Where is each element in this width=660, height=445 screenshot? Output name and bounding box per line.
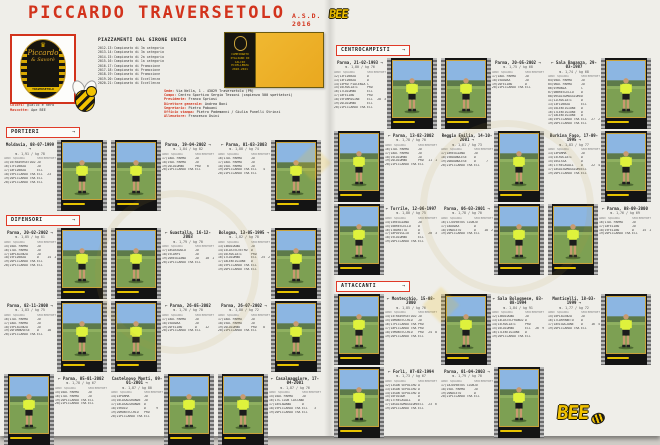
stats-cell	[595, 172, 600, 176]
player-block: Castelnovo Monti, 09-01-2001 →m. 1,87 / …	[111, 374, 216, 445]
player-stats: Bologna, 13-05-1995 →m. 1,82 / kg 78ANNO…	[218, 228, 270, 299]
player-stats: Parma, 01-04-2003 →m. 1,79 / kg 70ANNOSQ…	[441, 367, 493, 438]
stats-cell: 19/20	[385, 407, 394, 411]
player-card	[4, 374, 54, 445]
player-physique: m. 1,91 / kg 78	[4, 152, 56, 156]
stats-cell: PICCARDO TRA	[64, 402, 88, 406]
stats-cell: ECC	[37, 333, 45, 337]
section-header-attaccanti: ATTACCANTI→	[336, 281, 410, 292]
stats-cell: PICCARDO TRA	[557, 327, 581, 331]
player-name-text	[607, 194, 629, 197]
player-name-text	[340, 267, 362, 270]
stats-row: 19/20PICCARDO TRAECC	[269, 411, 321, 415]
player-stats: Castelnovo Monti, 09-01-2001 →m. 1,87 / …	[111, 374, 163, 445]
placement-label: Campionato di Eccellenza	[114, 81, 160, 85]
player-name-text	[340, 430, 362, 433]
player-card	[601, 58, 651, 129]
crest-stripe	[21, 48, 27, 90]
stats-cell	[488, 164, 493, 168]
stats-cell: ECC	[632, 232, 640, 236]
stats-cell: ECC	[144, 415, 152, 419]
placements-panel: PIAZZAMENTI DAL GIRONE UNICO 2012-13:Cam…	[98, 38, 218, 86]
stats-cell: PICCARDO TRA	[171, 329, 195, 333]
player-physique: m. 1,84 / kg 91	[492, 306, 544, 310]
section-attaccanti: ATTACCANTI→← Montecchio, 15-08-2000m. 1,…	[334, 272, 656, 438]
stats-cell: ECC	[418, 240, 426, 244]
player-nameplate	[606, 354, 646, 363]
player-stats: ← Parma, 08-09-2000m. 1,76 / kg 69ANNOSQ…	[599, 204, 651, 275]
stats-cell	[265, 172, 270, 176]
player-block: Monticelli, 18-03-1999 →m. 1,77 / kg 72A…	[548, 294, 653, 365]
championship-card-label: CAMPIONATOITALIANO DICALCIOECCELLENZA202…	[225, 33, 255, 87]
stats-row: 19/20PICCARDO TRAECC	[385, 407, 437, 411]
player-nameplate	[339, 354, 379, 363]
player-physique: m. 1,73 / kg 67	[385, 374, 437, 378]
crest-stripe	[59, 48, 65, 90]
player-nameplate	[446, 118, 486, 127]
player-photo	[553, 206, 593, 264]
stats-cell: 19/20	[548, 327, 557, 331]
stats-cell	[432, 240, 437, 244]
player-card	[334, 131, 384, 202]
stats-cell: PICCARDO TRA	[227, 268, 251, 272]
player-physique: m. 1,74 / kg 68	[548, 70, 600, 74]
player-card	[57, 228, 107, 299]
player-block: ← Forlì, 07-02-1994m. 1,73 / kg 67ANNOSQ…	[334, 367, 439, 438]
player-card	[111, 140, 161, 211]
player-card	[271, 301, 321, 372]
player-block: Parma, 02-11-2000 →m. 1,83 / kg 75ANNOSQ…	[4, 301, 109, 372]
stats-cell: PICCARDO TRA	[13, 333, 37, 337]
championship-card: CAMPIONATOITALIANO DICALCIOECCELLENZA202…	[224, 32, 324, 88]
arrow-right-icon: →	[402, 47, 405, 53]
player-photo	[223, 376, 263, 434]
player-stats: Burkina Faso, 17-09-1995 →m. 1,83 / kg 7…	[548, 131, 600, 202]
stats-cell: 20/21	[162, 329, 171, 333]
player-card	[441, 294, 491, 365]
player-stats: ← Casalmaggiore, 17-04-2001m. 1,87 / kg …	[269, 374, 321, 445]
stats-cell: ECC	[418, 163, 426, 167]
placements-title: PIAZZAMENTI DAL GIRONE UNICO	[98, 38, 218, 43]
player-block: ← Sala Bolognese, 03-08-1994m. 1,84 / kg…	[441, 294, 546, 365]
player-name-text	[340, 194, 362, 197]
player-stats: Parma, 20-05-2002 →m. 1,75 / kg 68ANNOSQ…	[492, 58, 544, 129]
section-blocks: Parma, 21-02-1993 →m. 1,80 / kg 76ANNOSQ…	[334, 58, 656, 275]
player-card	[334, 204, 384, 275]
stats-cell: ECC	[302, 411, 310, 415]
player-block: ← Parma, 26-05-2002m. 1,76 / kg 70ANNOSQ…	[111, 301, 216, 372]
player-photo	[499, 206, 539, 264]
stats-row: 20/21PICCARDO TRAECC	[334, 106, 386, 110]
player-name-text	[224, 437, 246, 440]
crest-note-label: Colori:	[10, 103, 27, 107]
player-name-text	[500, 430, 522, 433]
section-title: PORTIERI	[11, 129, 39, 135]
stats-cell: PICCARDO TRA	[450, 232, 474, 236]
section-blocks: Parma, 20-02-2002 →m. 1,85 / kg 81ANNOSQ…	[4, 228, 326, 445]
stats-cell: 20/21	[385, 163, 394, 167]
player-physique: m. 1,79 / kg 70	[162, 240, 214, 244]
player-physique: m. 1,79 / kg 70	[441, 374, 493, 378]
stats-cell	[539, 335, 544, 339]
stats-cell: 20/21	[162, 168, 171, 172]
section-title: DIFENSORI	[11, 217, 43, 223]
stats-row: 20/21PICCARDO TRAECC	[162, 168, 214, 172]
placement-season: 2020-21:	[98, 81, 114, 85]
stats-cell	[432, 163, 437, 167]
player-physique: m. 1,82 / kg 78	[218, 235, 270, 239]
stats-cell: PICCARDO TRA	[394, 407, 418, 411]
stats-cell: 19/20	[218, 268, 227, 272]
stats-cell: 20/21	[4, 333, 13, 337]
bee-footer-logo: BEE	[548, 367, 614, 438]
stats-row: 20/21PICCARDO TRAECC	[4, 333, 56, 337]
stats-cell	[381, 106, 386, 110]
player-name-text	[607, 357, 629, 360]
stats-cell: PICCARDO TRA	[13, 264, 37, 268]
stats-cell: PICCARDO TRA	[278, 411, 302, 415]
player-card	[601, 131, 651, 202]
masthead: PICCARDO TRAVERSETOLO A.S.D. 2016 BEE	[28, 3, 348, 29]
player-name-text	[277, 291, 299, 294]
mini-crest-icon	[234, 36, 247, 51]
stats-cell: 19/20	[269, 411, 278, 415]
stats-cell: PICCARDO TRA	[450, 395, 474, 399]
placements-list: 2012-13:Campionato di 3a categoria2013-1…	[98, 46, 218, 86]
player-stats: ← Forlì, 07-02-1994m. 1,73 / kg 67ANNOSQ…	[385, 367, 437, 438]
player-block: Parma, 19-04-2002 →m. 1,84 / kg 82ANNOSQ…	[111, 140, 216, 211]
section-title: CENTROCAMPISTI	[341, 47, 390, 53]
player-photo	[116, 303, 156, 361]
stats-row: 19/20PICCARDO TRAECC	[441, 232, 493, 236]
player-physique: m. 1,76 / kg 70	[162, 308, 214, 312]
player-nameplate	[276, 361, 316, 370]
player-block: ← Casalmaggiore, 17-04-2001m. 1,87 / kg …	[218, 374, 323, 445]
player-card	[111, 301, 161, 372]
player-nameplate	[9, 434, 49, 443]
stats-row: 20/21PICCARDO TRAECC	[441, 395, 493, 399]
stats-cell: ECC	[581, 172, 589, 176]
stats-cell: 19/20	[385, 240, 394, 244]
stats-row: 20/21PICCARDO TRAECC	[218, 172, 270, 176]
stats-cell: ECC	[88, 402, 96, 406]
player-name-text	[607, 121, 629, 124]
player-photo	[116, 142, 156, 200]
stats-cell: ECC	[581, 122, 589, 126]
player-stats: Moldavia, 08-07-1999 →m. 1,91 / kg 78ANN…	[4, 140, 56, 211]
stats-cell: ECC	[37, 181, 45, 185]
stats-cell: ECC	[251, 172, 259, 176]
stats-cell: 20/21	[162, 261, 171, 265]
player-birth: ← Guastalla, 16-12-2003	[162, 231, 214, 240]
player-card	[57, 140, 107, 211]
stats-row: 20/21PICCARDO TRAECC	[441, 164, 493, 168]
bee-footer-icon	[589, 410, 606, 425]
player-stats: ← Sala Baganza, 29-03-1987m. 1,74 / kg 6…	[548, 58, 600, 129]
player-physique: m. 1,84 / kg 82	[162, 147, 214, 151]
stats-row: 20/21PICCARDO TRAECC	[218, 329, 270, 333]
section-portieri: PORTIERI→Moldavia, 08-07-1999 →m. 1,91 /…	[4, 118, 326, 211]
arrow-right-icon: →	[402, 283, 405, 289]
player-name-text	[393, 121, 415, 124]
player-photo	[339, 369, 379, 427]
stats-cell: ECC	[37, 264, 45, 268]
stats-cell: ECC	[195, 168, 203, 172]
stats-cell	[488, 395, 493, 399]
stats-cell: PICCARDO TRA	[13, 181, 37, 185]
stats-row: 20/21PICCARDO TRAECC	[111, 415, 163, 419]
stats-cell: ECC	[418, 407, 426, 411]
player-physique: m. 1,81 / kg 73	[441, 143, 493, 147]
stats-cell: 20/21	[492, 86, 501, 90]
stats-row: 19/20PICCARDO TRAECC	[385, 240, 437, 244]
page-title: PICCARDO TRAVERSETOLO	[28, 3, 285, 23]
stats-cell: 19/20	[599, 232, 608, 236]
stats-cell: 19/20	[385, 335, 394, 339]
player-physique: m. 1,85 / kg 76	[385, 306, 437, 310]
player-photo	[392, 60, 432, 118]
player-photo	[339, 206, 379, 264]
stats-cell	[595, 122, 600, 126]
stats-cell	[209, 168, 214, 172]
player-stats: Reggio Emilia, 14-10-2001 →m. 1,81 / kg …	[441, 131, 493, 202]
player-nameplate	[62, 361, 102, 370]
player-name-text	[63, 291, 85, 294]
player-block: Burkina Faso, 17-09-1995 →m. 1,83 / kg 7…	[548, 131, 653, 202]
championship-line: 2020-2021	[225, 68, 255, 72]
player-physique: m. 1,83 / kg 77	[548, 143, 600, 147]
stats-cell: 20/21	[4, 181, 13, 185]
player-nameplate	[606, 118, 646, 127]
player-name-text	[10, 437, 32, 440]
player-block: Parma, 21-02-1993 →m. 1,80 / kg 76ANNOSQ…	[334, 58, 439, 129]
stats-cell: PICCARDO TRA	[501, 335, 525, 339]
stats-row: 19/20PICCARDO TRAECC	[218, 268, 270, 272]
player-photo	[9, 376, 49, 434]
player-physique: m. 1,87 / kg 80	[111, 386, 163, 390]
player-card	[271, 140, 321, 211]
player-card	[111, 228, 161, 299]
stats-row: 19/20PICCARDO TRAECC	[492, 335, 544, 339]
player-photo	[169, 376, 209, 434]
player-card	[601, 294, 651, 365]
player-block: ← Guastalla, 16-12-2003m. 1,79 / kg 70AN…	[111, 228, 216, 299]
stats-cell: 20/21	[4, 264, 13, 268]
stats-cell: PICCARDO TRA	[171, 168, 195, 172]
player-name-text	[117, 203, 139, 206]
player-physique: m. 1,83 / kg 75	[4, 308, 56, 312]
player-stats: ← Parma, 26-05-2002m. 1,76 / kg 70ANNOSQ…	[162, 301, 214, 372]
player-nameplate	[116, 288, 156, 297]
player-name-text	[447, 121, 469, 124]
stats-row: 20/21PICCARDO TRAECC	[4, 264, 56, 268]
player-physique: m. 1,80 / kg 76	[334, 65, 386, 69]
player-name-text	[340, 357, 362, 360]
player-birth: Burkina Faso, 17-09-1995 →	[548, 134, 600, 143]
stats-cell: 19/20	[548, 172, 557, 176]
player-card	[494, 204, 544, 275]
crest-note-value: Ape BEE	[31, 108, 46, 112]
player-stats: Parma, 19-04-2002 →m. 1,84 / kg 82ANNOSQ…	[162, 140, 214, 211]
player-nameplate	[339, 191, 379, 200]
stats-row: 19/20PICCARDO TRAECC	[385, 335, 437, 339]
player-block: ← Parma, 05-01-2002m. 1,78 / kg 67ANNOSQ…	[4, 374, 109, 445]
player-name-text	[500, 194, 522, 197]
section-difensori: DIFENSORI→Parma, 20-02-2002 →m. 1,85 / k…	[4, 206, 326, 445]
player-name-text	[117, 291, 139, 294]
page-left: PICCARDO TRAVERSETOLO A.S.D. 2016 BEE ♛ …	[0, 0, 330, 436]
player-name-text	[117, 364, 139, 367]
section-centrocampisti: CENTROCAMPISTI→Parma, 21-02-1993 →m. 1,8…	[334, 36, 656, 275]
player-stats: Parma, 02-11-2000 →m. 1,83 / kg 75ANNOSQ…	[4, 301, 56, 372]
player-physique: m. 1,87 / kg 76	[269, 386, 321, 390]
player-card	[548, 204, 598, 275]
stats-row: 19/20PICCARDO TRAECC	[548, 327, 600, 331]
player-card	[494, 131, 544, 202]
player-birth: Castelnovo Monti, 09-01-2001 →	[111, 377, 163, 386]
bee-footer-text: BEE	[556, 402, 590, 424]
stats-cell: 20/21	[55, 402, 64, 406]
stats-cell: ECC	[251, 268, 259, 272]
player-nameplate	[606, 191, 646, 200]
player-photo	[62, 142, 102, 200]
page-subtitle: A.S.D. 2016	[292, 12, 321, 28]
stats-cell	[432, 407, 437, 411]
stats-cell: 20/21	[334, 106, 343, 110]
player-stats: ← Parma, 05-01-2002m. 1,78 / kg 67ANNOSQ…	[55, 374, 107, 445]
player-block: Moldavia, 08-07-1999 →m. 1,91 / kg 78ANN…	[4, 140, 109, 211]
stats-cell	[539, 86, 544, 90]
stats-cell: PICCARDO TRA	[227, 329, 251, 333]
crest-note: Mascotte: Ape BEE	[10, 108, 54, 113]
player-block: ← Sala Baganza, 29-03-1987m. 1,74 / kg 6…	[548, 58, 653, 129]
player-block: Reggio Emilia, 14-10-2001 →m. 1,81 / kg …	[441, 131, 546, 202]
player-name-text	[554, 267, 576, 270]
player-physique: m. 1,80 / kg 75	[385, 211, 437, 215]
stats-row: 19/20PICCARDO TRAECC	[548, 172, 600, 176]
player-stats: ← Parma, 13-02-2002m. 1,78 / kg 70ANNOSQ…	[385, 131, 437, 202]
stats-cell	[265, 329, 270, 333]
stats-row: 20/21PICCARDO TRAECC	[162, 329, 214, 333]
stats-cell: PICCARDO TRA	[171, 261, 195, 265]
player-nameplate	[276, 288, 316, 297]
championship-card-lines: CAMPIONATOITALIANO DICALCIOECCELLENZA202…	[225, 53, 255, 72]
stats-cell: 20/21	[111, 415, 120, 419]
player-card	[271, 228, 321, 299]
player-stats: ← Montecchio, 15-08-2000m. 1,85 / kg 76A…	[385, 294, 437, 365]
stats-cell: ECC	[251, 329, 259, 333]
stats-cell	[646, 232, 651, 236]
stats-cell: PICCARDO TRA	[557, 122, 581, 126]
player-photo	[339, 296, 379, 354]
crest-banner: TRAVERSETOLO	[24, 87, 62, 92]
player-card	[334, 294, 384, 365]
player-card	[441, 58, 491, 129]
club-crest: ♛ Piccardo & Savorè TRAVERSETOLO	[10, 34, 76, 104]
player-nameplate	[169, 434, 209, 443]
stats-cell: 19/20	[548, 122, 557, 126]
player-stats: ← Guastalla, 16-12-2003m. 1,79 / kg 70AN…	[162, 228, 214, 299]
player-physique: m. 1,76 / kg 69	[599, 211, 651, 215]
player-name-text	[500, 267, 522, 270]
section-blocks: Moldavia, 08-07-1999 →m. 1,91 / kg 78ANN…	[4, 140, 326, 211]
player-birth: ← Montecchio, 15-08-2000	[385, 297, 437, 306]
player-card	[164, 374, 214, 445]
stats-cell: ECC	[525, 86, 533, 90]
crest-note-value: giallo e nero	[27, 103, 54, 107]
bee-mascot-icon	[70, 80, 100, 112]
player-birth: Reggio Emilia, 14-10-2001 →	[441, 134, 493, 143]
stats-cell: 19/20	[441, 232, 450, 236]
player-block: ← Parma, 13-02-2002m. 1,78 / kg 70ANNOSQ…	[334, 131, 439, 202]
stats-row: 20/21PICCARDO TRAECC	[4, 181, 56, 185]
player-nameplate	[62, 288, 102, 297]
stats-cell: PICCARDO TRA	[557, 172, 581, 176]
stats-row: 20/21PICCARDO TRAECC	[385, 163, 437, 167]
stats-cell: PICCARDO TRA	[343, 106, 367, 110]
stats-cell	[488, 232, 493, 236]
player-stats: ← Torrile, 12-06-1997m. 1,80 / kg 75ANNO…	[385, 204, 437, 275]
player-physique: m. 1,80 / kg 72	[218, 308, 270, 312]
stats-row: 19/20PICCARDO TRAECC	[548, 122, 600, 126]
player-physique: m. 1,77 / kg 72	[548, 306, 600, 310]
stats-cell	[265, 268, 270, 272]
player-block: ← Montecchio, 15-08-2000m. 1,85 / kg 76A…	[334, 294, 439, 365]
stats-cell: 20/21	[441, 164, 450, 168]
section-header-difensori: DIFENSORI→	[6, 215, 80, 226]
arrow-right-icon: →	[72, 217, 75, 223]
player-birth: Moldavia, 08-07-1999 →	[4, 143, 56, 152]
player-block: ← Torrile, 12-06-1997m. 1,80 / kg 75ANNO…	[334, 204, 439, 275]
player-block: Parma, 26-07-2002 →m. 1,80 / kg 72ANNOSQ…	[218, 301, 323, 372]
player-stats: ← Sala Bolognese, 03-08-1994m. 1,84 / kg…	[492, 294, 544, 365]
player-photo	[276, 142, 316, 200]
stats-cell	[51, 264, 56, 268]
stats-cell	[432, 335, 437, 339]
player-photo	[606, 296, 646, 354]
player-name-text	[63, 203, 85, 206]
stats-row: 19/20PICCARDO TRAECC	[599, 232, 651, 236]
stats-cell: PICCARDO TRA	[227, 172, 251, 176]
player-card	[57, 301, 107, 372]
player-photo	[446, 296, 486, 354]
stats-cell: ECC	[474, 395, 482, 399]
player-photo	[276, 230, 316, 288]
bee-head	[86, 86, 97, 97]
player-photo	[62, 230, 102, 288]
stats-cell	[595, 327, 600, 331]
player-block: ← Parma, 01-03-2003m. 1,88 / kg 74ANNOSQ…	[218, 140, 323, 211]
stats-cell: ECC	[195, 329, 203, 333]
player-photo	[276, 303, 316, 361]
stats-row: 20/21PICCARDO TRAECC	[55, 402, 107, 406]
player-physique: m. 1,78 / kg 70	[441, 211, 493, 215]
stats-cell: PICCARDO TRA	[394, 163, 418, 167]
player-photo	[606, 133, 646, 191]
player-nameplate	[116, 361, 156, 370]
placement-row: 2020-21:Campionato di Eccellenza	[98, 81, 218, 85]
stats-cell	[51, 181, 56, 185]
player-name-text	[447, 357, 469, 360]
player-block: Parma, 20-02-2002 →m. 1,85 / kg 81ANNOSQ…	[4, 228, 109, 299]
stats-cell: PICCARDO TRA	[450, 164, 474, 168]
stats-cell: ECC	[581, 327, 589, 331]
section-title: ATTACCANTI	[341, 283, 376, 289]
stats-cell: PICCARDO TRA	[394, 335, 418, 339]
stats-cell	[158, 415, 163, 419]
stats-cell	[209, 329, 214, 333]
player-block: ← Parma, 08-09-2000m. 1,76 / kg 69ANNOSQ…	[548, 204, 653, 275]
